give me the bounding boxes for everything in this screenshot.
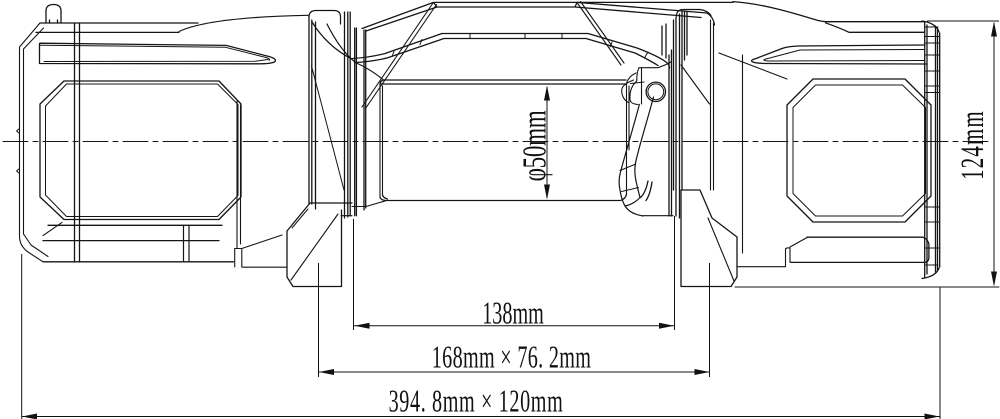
svg-text:φ50mm: φ50mm: [516, 110, 553, 181]
svg-text:138mm: 138mm: [482, 295, 544, 331]
svg-text:168mm × 76. 2mm: 168mm × 76. 2mm: [432, 339, 591, 375]
svg-text:394. 8mm × 120mm: 394. 8mm × 120mm: [389, 383, 564, 419]
svg-text:124mm: 124mm: [953, 110, 990, 180]
